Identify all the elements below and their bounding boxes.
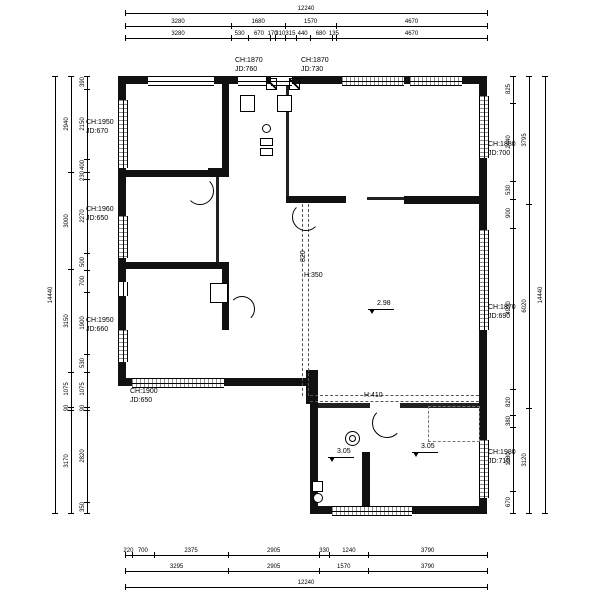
dim-segment: 2905	[228, 546, 319, 555]
dim-label: 3790	[421, 564, 434, 570]
fixture-box	[260, 148, 273, 156]
dim-segment: 400	[78, 159, 87, 172]
dim-chain-right-detail: 825244053090049908203801980670	[504, 76, 514, 513]
dim-segment: 3295	[125, 562, 228, 571]
dim-label: 500	[80, 256, 86, 266]
dim-segment: 3790	[368, 562, 487, 571]
dim-label: 2820	[80, 449, 86, 462]
dim-segment: 530	[78, 354, 87, 371]
dim-segment: 825	[504, 76, 513, 103]
dim-segment: 3150	[62, 269, 71, 372]
dim-segment: 12240	[125, 4, 487, 13]
window-symbol	[118, 216, 128, 258]
door-swing-arc	[372, 408, 402, 438]
jd-value: JD:650	[130, 397, 152, 404]
dim-chain-right-major: 379560203120	[520, 76, 530, 513]
window-symbol	[342, 76, 404, 86]
dim-segment: 670	[504, 491, 513, 513]
dim-chain-left-detail: 3902150400230227050070019005301075902820…	[78, 76, 88, 513]
level-marker: 2.98	[368, 300, 394, 310]
window-symbol	[238, 76, 266, 86]
door-swing-arc	[292, 203, 320, 231]
window-symbol	[332, 506, 412, 516]
dim-segment: 3790	[368, 546, 487, 555]
dim-label: 380	[506, 416, 512, 426]
dim-label: 1680	[251, 19, 264, 25]
dim-label: 530	[80, 358, 86, 368]
beam-dashed-line	[308, 204, 309, 396]
dim-segment: 900	[504, 199, 513, 228]
beam-dashed-line	[302, 204, 303, 396]
dim-segment: 530	[504, 181, 513, 198]
dim-label: 3000	[64, 214, 70, 227]
dim-segment: 440	[296, 29, 310, 38]
dim-chain-top-major: 3280168015704670	[125, 17, 487, 27]
dim-label: 670	[254, 31, 264, 37]
dim-segment: 2270	[78, 179, 87, 253]
dim-label: 4670	[405, 31, 418, 37]
jd-value: JD:650	[86, 215, 108, 222]
dim-label: 390	[80, 77, 86, 87]
dim-segment: 3280	[125, 17, 231, 26]
fixture-box	[277, 95, 292, 112]
dim-label: 3170	[64, 455, 70, 468]
door-swing-arc	[229, 296, 255, 322]
dim-segment: 310	[275, 29, 285, 38]
dim-segment: 390	[78, 76, 87, 89]
ch-value: CH:1950	[86, 119, 114, 126]
dim-chain-right-total: 14440	[536, 76, 546, 513]
dim-chain-bottom-detail: 2207002375290533012403790	[125, 546, 487, 556]
dim-segment: 4990	[504, 228, 513, 389]
dim-segment: 2375	[154, 546, 228, 555]
dim-segment: 1900	[78, 292, 87, 354]
ch-value: CH:1870	[235, 57, 263, 64]
fixture-box	[210, 283, 228, 303]
room-label: CH:1870JD:760	[235, 56, 263, 74]
dim-label: 700	[138, 548, 148, 554]
dim-segment: 1240	[329, 546, 368, 555]
dim-label: 14440	[48, 286, 54, 303]
dim-segment: 3120	[520, 408, 529, 513]
height-note: H:350	[304, 272, 323, 279]
door-swing-arc	[186, 177, 214, 205]
dim-label: 330	[319, 548, 329, 554]
ch-value: CH:1900	[130, 388, 158, 395]
dim-label: 12240	[298, 6, 315, 12]
window-symbol	[118, 330, 128, 362]
dim-label: 530	[235, 31, 245, 37]
dim-segment: 2150	[78, 89, 87, 159]
fixture-circle	[262, 124, 271, 133]
dim-label: 3120	[522, 454, 528, 467]
dim-label: 2150	[80, 117, 86, 130]
dim-label: 700	[80, 276, 86, 286]
fixture-box	[260, 138, 273, 146]
height-note: H:410	[364, 392, 383, 399]
dim-segment: 1570	[285, 17, 336, 26]
dim-segment: 1680	[231, 17, 285, 26]
jd-value: JD:660	[86, 326, 108, 333]
dim-chain-top-detail: 32805306701703103154406801354670	[125, 29, 487, 39]
dim-segment: 3170	[62, 410, 71, 513]
dim-label: 825	[506, 84, 512, 94]
room-label: CH:1900JD:650	[130, 387, 158, 405]
dim-label: 3795	[522, 133, 528, 146]
dim-segment: 350	[78, 502, 87, 513]
dim-label: 310	[275, 31, 285, 37]
dim-label: 2905	[267, 548, 280, 554]
dim-label: 440	[298, 31, 308, 37]
beam-dashed-line	[310, 395, 479, 396]
dim-chain-top-total: 12240	[125, 4, 487, 14]
room-label: CH:1870JD:730	[301, 56, 329, 74]
room-label: CH:1950JD:660	[86, 316, 114, 334]
fixture-box	[240, 95, 255, 112]
dim-segment: 4670	[336, 29, 487, 38]
dim-segment: 315	[285, 29, 295, 38]
window-symbol	[410, 76, 462, 86]
dim-segment: 4670	[336, 17, 487, 26]
dim-segment: 3795	[520, 76, 529, 204]
dim-segment: 12240	[125, 578, 487, 587]
dim-label: 4670	[405, 19, 418, 25]
dim-label: 350	[80, 502, 86, 512]
dim-label: 1900	[80, 317, 86, 330]
level-marker: 3.05	[328, 448, 354, 458]
wall-segment	[318, 403, 370, 408]
wall-segment	[286, 196, 346, 203]
dim-segment: 6020	[520, 204, 529, 407]
dim-segment: 330	[319, 546, 329, 555]
dim-label: 6020	[522, 299, 528, 312]
dim-label: 2440	[506, 135, 512, 148]
wall-segment	[362, 452, 370, 506]
dim-label: 2940	[64, 117, 70, 130]
dim-segment: 3000	[62, 172, 71, 270]
dim-label: 670	[506, 497, 512, 507]
floor-drain-icon	[313, 493, 323, 503]
ch-value: CH:1960	[86, 206, 114, 213]
wall-segment	[208, 168, 229, 177]
dim-label: 1570	[337, 564, 350, 570]
dashed-outline	[428, 406, 480, 442]
dim-segment: 530	[231, 29, 248, 38]
dim-label: 3150	[64, 314, 70, 327]
dim-segment: 1980	[504, 427, 513, 491]
dim-segment: 700	[78, 270, 87, 293]
window-symbol	[148, 76, 214, 86]
dim-segment: 14440	[46, 76, 55, 513]
dim-label: 3790	[421, 548, 434, 554]
wall-segment	[367, 197, 405, 200]
floor-plan-canvas: CH:1950JD:670 CH:1870JD:760 CH:1870JD:73…	[0, 0, 600, 600]
dim-segment: 1075	[78, 372, 87, 407]
beam-dashed-line	[310, 401, 479, 402]
room-label: CH:1950JD:670	[86, 118, 114, 136]
dim-segment: 2940	[62, 76, 71, 172]
dim-segment: 2820	[78, 410, 87, 502]
wall-segment	[126, 262, 222, 269]
dim-chain-bottom-major: 3295290515703790	[125, 562, 487, 572]
basin-icon	[349, 435, 356, 442]
level-value: 3.05	[421, 443, 435, 450]
dim-label: 820	[506, 397, 512, 407]
window-symbol	[118, 100, 128, 168]
dim-segment: 3280	[125, 29, 231, 38]
level-value: 3.05	[337, 448, 351, 455]
floor-drain-icon	[312, 481, 323, 492]
dim-label: 14440	[538, 286, 544, 303]
window-symbol	[118, 282, 128, 296]
electrical-box-icon	[266, 78, 277, 90]
dim-segment: 2905	[228, 562, 319, 571]
ch-value: CH:1870	[301, 57, 329, 64]
dim-segment: 14440	[536, 76, 545, 513]
electrical-box-icon	[289, 78, 300, 90]
beam-height-label: 820	[300, 250, 307, 262]
dim-segment: 2440	[504, 103, 513, 182]
jd-value: JD:670	[86, 128, 108, 135]
dim-segment: 220	[125, 546, 132, 555]
dim-label: 1075	[64, 383, 70, 396]
dim-label: 1240	[342, 548, 355, 554]
dim-label: 2270	[80, 210, 86, 223]
dim-label: 12240	[298, 580, 315, 586]
dim-label: 3280	[171, 31, 184, 37]
dim-label: 400	[80, 160, 86, 170]
dim-label: 2375	[184, 548, 197, 554]
dim-label: 530	[506, 185, 512, 195]
ch-value: CH:1950	[86, 317, 114, 324]
dim-label: 1075	[80, 383, 86, 396]
dim-label: 3295	[170, 564, 183, 570]
dim-segment: 380	[504, 415, 513, 427]
jd-value: JD:730	[301, 66, 323, 73]
dim-label: 3280	[171, 19, 184, 25]
dim-label: 1980	[506, 453, 512, 466]
dim-label: 1570	[304, 19, 317, 25]
dim-chain-left-major: 2940300031501075903170	[62, 76, 72, 513]
dim-segment: 500	[78, 253, 87, 269]
dim-segment: 820	[504, 389, 513, 415]
wall-segment	[216, 177, 219, 262]
dim-chain-bottom-total: 12240	[125, 578, 487, 588]
dim-segment: 230	[78, 172, 87, 180]
dim-label: 900	[506, 208, 512, 218]
wall-segment	[404, 196, 479, 204]
dim-segment: 700	[132, 546, 154, 555]
level-value: 2.98	[377, 300, 391, 307]
dim-label: 680	[316, 31, 326, 37]
dim-label: 4990	[506, 301, 512, 314]
level-marker: 3.05	[412, 443, 438, 453]
dim-label: 315	[285, 31, 295, 37]
wall-segment	[222, 84, 229, 177]
dim-segment: 1570	[319, 562, 368, 571]
jd-value: JD:760	[235, 66, 257, 73]
room-label: CH:1960JD:650	[86, 205, 114, 223]
dim-label: 2905	[267, 564, 280, 570]
dim-segment: 1075	[62, 372, 71, 407]
dim-chain-left-total: 14440	[46, 76, 56, 513]
